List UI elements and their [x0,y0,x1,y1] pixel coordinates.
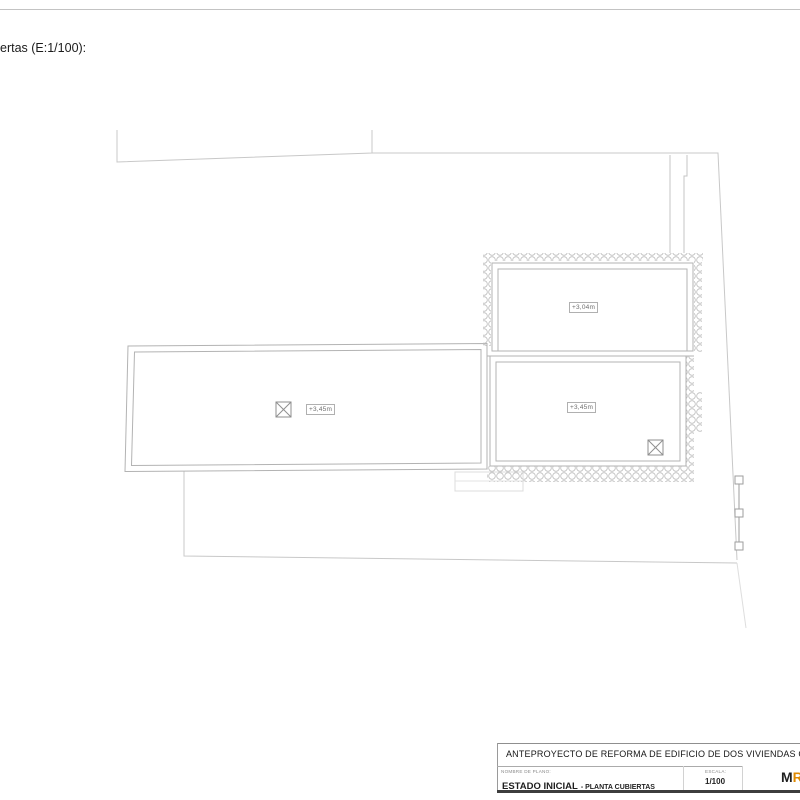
logo-letter-r: R [793,769,800,785]
titleblock-left-border [497,743,498,793]
project-title: ANTEPROYECTO DE REFORMA DE EDIFICIO DE D… [506,749,800,759]
plan-name-label: NOMBRE DE PLANO: [501,769,551,774]
titleblock-divider-line [497,766,743,767]
site-plan-drawing [0,0,800,800]
logo-letter-m: M [781,769,793,785]
skylight-marker-right [648,440,663,455]
titleblock-cell-divider-1 [683,766,684,792]
elevation-label-left: +3,45m [306,404,335,415]
skylight-marker-left [276,402,291,417]
titleblock-cell-divider-2 [742,766,743,792]
titleblock-top-line [497,743,800,744]
fence-lines [670,155,687,253]
scale-value: 1/100 [705,777,725,786]
company-logo: MR [781,769,800,785]
scale-label: ESCALA: [705,769,726,774]
elevation-label-upper-right: +3,04m [569,302,598,313]
elevation-label-lower-right: +3,45m [567,402,596,413]
titleblock-bottom-line [497,790,800,793]
drawing-sheet: ertas (E:1/100): [0,0,800,800]
roof-tile-edges [483,253,703,482]
site-boundary [117,130,746,628]
